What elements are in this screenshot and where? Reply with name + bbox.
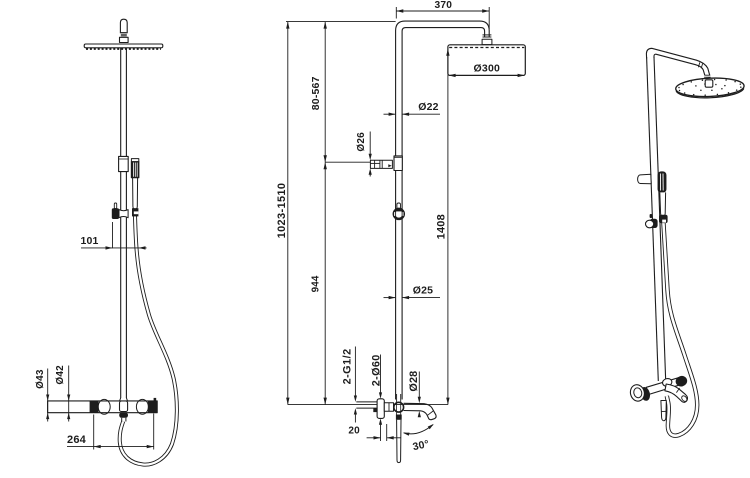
svg-text:80-567: 80-567 <box>310 76 322 110</box>
svg-text:1408: 1408 <box>435 214 447 239</box>
svg-text:Ø42: Ø42 <box>55 365 66 385</box>
svg-text:2-G1/2: 2-G1/2 <box>342 348 354 384</box>
svg-text:Ø28: Ø28 <box>408 371 420 392</box>
svg-text:1023-1510: 1023-1510 <box>276 183 288 239</box>
svg-text:Ø300: Ø300 <box>474 63 501 75</box>
svg-text:Ø26: Ø26 <box>356 132 367 152</box>
svg-text:Ø43: Ø43 <box>35 369 46 389</box>
svg-text:944: 944 <box>311 275 322 292</box>
svg-text:Ø25: Ø25 <box>413 284 433 296</box>
svg-text:370: 370 <box>434 0 452 11</box>
svg-text:101: 101 <box>80 235 98 247</box>
svg-text:Ø22: Ø22 <box>418 101 438 113</box>
svg-text:20: 20 <box>348 426 360 437</box>
svg-text:264: 264 <box>67 434 87 446</box>
